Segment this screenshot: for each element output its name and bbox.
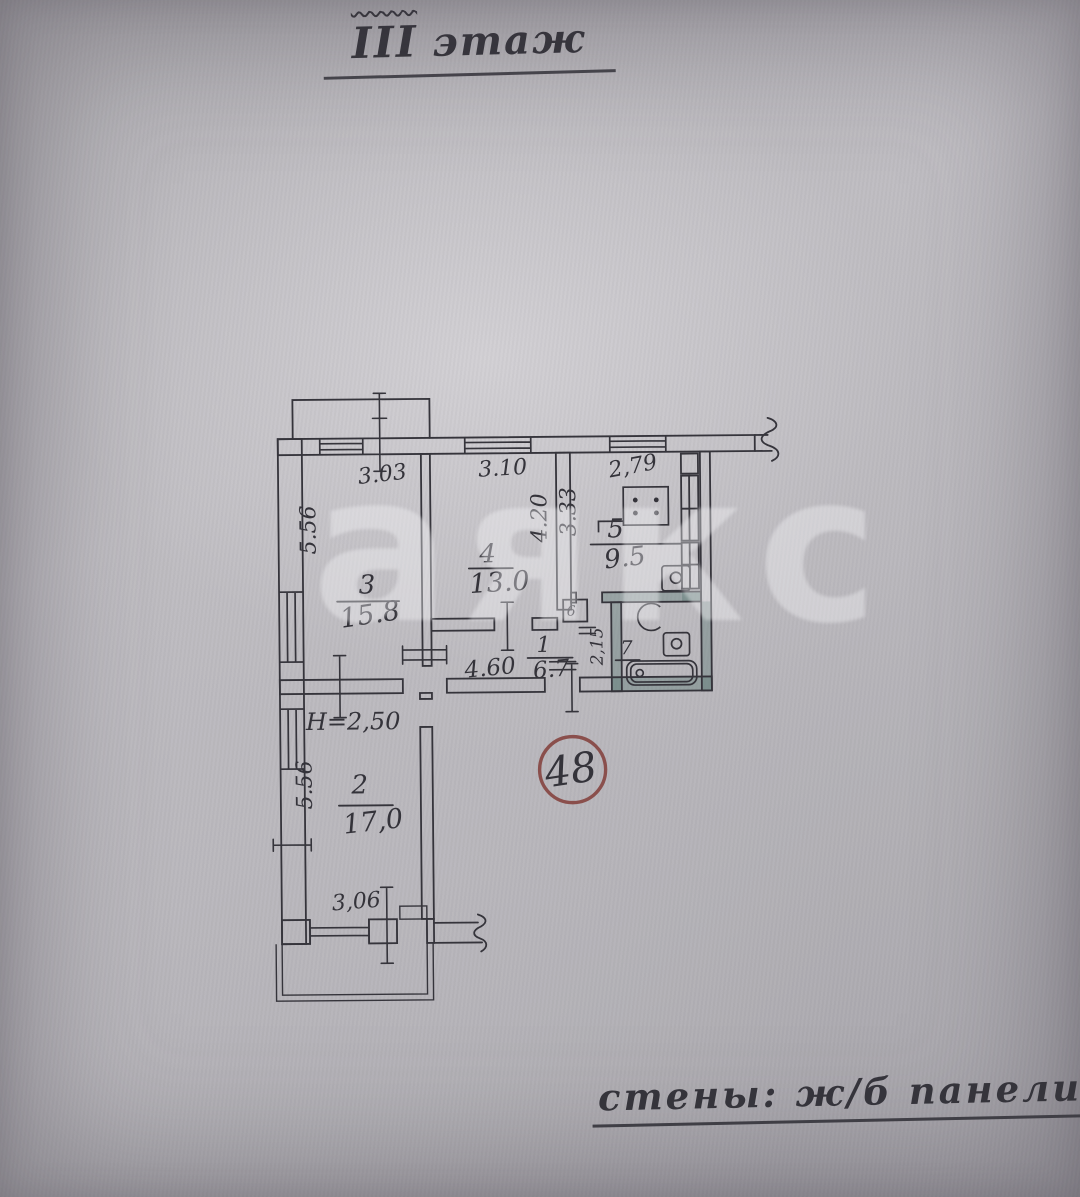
door-room2-jambs [420,699,432,727]
break-balcony-squiggle [474,914,486,951]
dim-hallway-length: 4.60 [462,653,516,684]
floor-plan-drawing: 3.03 3.10 2,79 5.56 4.20 3.33 4.60 5.56 … [247,368,813,1033]
wall-break-symbols [430,418,783,952]
room4-area: 13.0 [469,565,531,600]
room6-number: 6 [567,604,576,620]
dim-room4-width: 3.10 [477,455,527,483]
wall-room4-bottom-b [532,618,557,630]
washbasin-drain-icon [671,639,681,649]
balcony-outer [276,943,433,1001]
room5-number: 5 [607,514,624,544]
bathtub-drain-icon [636,670,643,677]
break-top-right-squiggle [761,418,778,461]
dim-room2-depth: 5.56 [293,760,318,809]
window-room3-left [279,592,304,662]
room1-area: 6.7 [532,655,571,684]
window-room4-top [465,437,531,454]
dim-room4-depth: 4.20 [527,493,552,543]
walls-material-note: стены: ж/б панели [592,1064,1080,1127]
balcony-inner [282,943,427,995]
door-room3 [403,646,447,664]
stamp-number: 48 [540,742,600,797]
dim-room3-depth: 5.56 [296,505,321,554]
room7-number: 7 [620,637,633,659]
window-room2-bottom [310,919,369,944]
balcony-outline [276,943,433,1001]
apartment-number-stamp: 48 [539,736,606,803]
vent-shaft-a [681,454,698,474]
window-kitchen-top [610,436,666,452]
stove-burners-icon [633,497,659,515]
title-floor-word: этаж [431,15,586,66]
stove-icon [623,487,668,525]
room1-number: 1 [536,633,550,658]
wall-room2-right [420,727,434,919]
wall-roof-bump [292,399,429,439]
room2-area: 17,0 [342,803,405,841]
title-floor-roman-numeral: III [351,17,419,69]
wall-room2-right-stub [420,693,432,699]
room2-number: 2 [350,770,368,800]
dim-kitchen-depth: 3.33 [556,487,581,536]
document-photo-background: IIIэтаж [0,0,1080,1197]
dim-kitchen-width: 2,79 [605,450,659,484]
room5-area: 9.5 [603,541,647,575]
dim-room2-width: 3,06 [331,888,382,917]
wall-room3-room4-divider [421,454,432,666]
balcony-door-leaf [400,906,427,919]
wall-top [278,435,755,455]
dim-room3-width: 3.03 [357,460,408,490]
page-title: IIIэтаж [322,12,615,80]
wall-room2-bottom-c [427,919,434,943]
axis-tick-room4-door [501,602,513,650]
room4-number: 4 [478,539,496,569]
axis-tick-top [372,393,387,471]
wall-room2-bottom-b [369,919,397,943]
ceiling-height-note: Н=2,50 [305,707,401,736]
kitchen-sink-drain-icon [670,572,681,583]
toilet-icon [638,603,661,630]
kitchen-sink-icon [662,566,690,591]
axis-tick-bottom-wall [381,887,394,963]
window-room2-left [280,709,305,769]
floor-plan: 3.03 3.10 2,79 5.56 4.20 3.33 4.60 5.56 … [247,368,813,1033]
washbasin-icon [663,633,689,656]
dim-bathroom-width: 2,15 [587,627,607,666]
wall-kitchen-bottom-a [571,593,576,603]
wall-room4-bottom-a [431,618,494,631]
room3-number: 3 [359,570,376,600]
balcony-door-jambs [397,919,427,943]
window-room3-top [320,438,363,454]
wall-middle-a [280,679,403,694]
